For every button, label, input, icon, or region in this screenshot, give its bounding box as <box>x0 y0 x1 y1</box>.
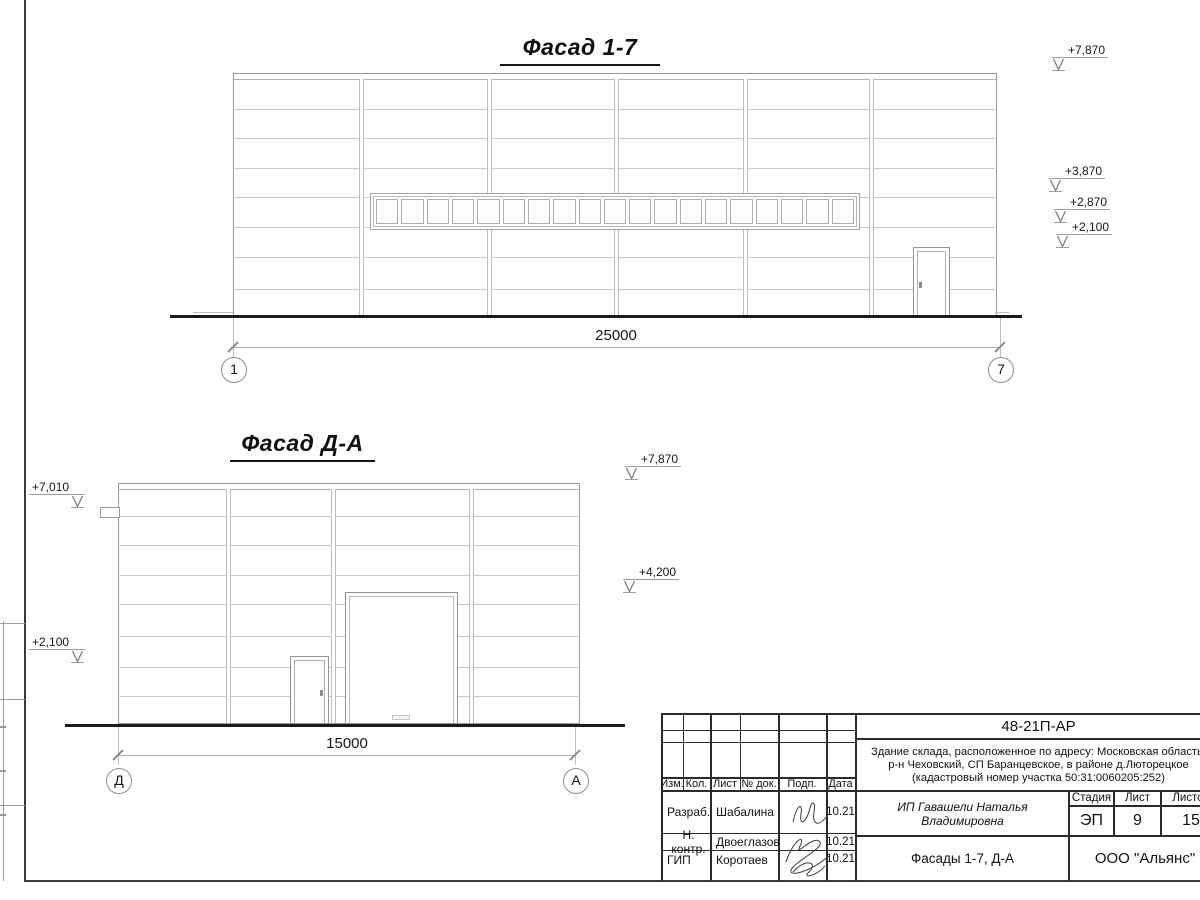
facade-1-7-title: Фасад 1-7 <box>500 34 660 66</box>
window-pane <box>604 199 626 224</box>
window-pane <box>376 199 398 224</box>
window-pane <box>730 199 752 224</box>
canopy <box>100 507 120 518</box>
margin-divider <box>0 623 25 624</box>
axis-bubble-d: Д <box>106 768 132 794</box>
base-ledge <box>193 312 233 313</box>
dimension-line <box>118 755 575 756</box>
level-arrow-icon <box>1049 179 1062 192</box>
stamp-col-list: Лист <box>710 777 740 791</box>
drawing-sheet: Фасад 1-7 25000 1 7 +7 <box>0 0 1200 900</box>
window-strip-inner <box>373 196 857 227</box>
frame-bottom <box>24 880 1200 882</box>
signature <box>779 828 833 880</box>
window-pane <box>477 199 499 224</box>
stamp-company: ООО "Альянс" <box>1070 837 1200 880</box>
stamp-project-code: 48-21П-АР <box>857 715 1200 738</box>
window-pane <box>401 199 423 224</box>
window-pane <box>553 199 575 224</box>
mullion <box>469 489 474 723</box>
stamp-name: Коротаев <box>712 850 778 880</box>
stamp-stage-label: Стадия <box>1070 791 1113 805</box>
dimension-value: 15000 <box>302 735 392 752</box>
stamp-sheets-label: Листов <box>1162 791 1200 805</box>
extension-line <box>1000 318 1001 357</box>
facade-d-a-title: Фасад Д-А <box>230 430 375 462</box>
level-arrow-icon <box>71 650 84 663</box>
stamp-role: Н. контр. <box>663 833 710 850</box>
door-facade-1-7 <box>913 247 950 317</box>
door-handle <box>320 690 323 696</box>
elevation-mark: +2,870 <box>1054 196 1110 223</box>
stamp-col-izm: Изм. <box>661 777 683 791</box>
window-pane <box>680 199 702 224</box>
ribbon-window <box>370 193 860 230</box>
elevation-mark: +3,870 <box>1049 165 1105 192</box>
margin-text-mark <box>0 770 6 772</box>
elevation-mark: +4,200 <box>623 566 679 593</box>
stamp-name: Двоеглазов <box>712 833 778 850</box>
level-arrow-icon <box>71 495 84 508</box>
window-pane <box>705 199 727 224</box>
level-arrow-icon <box>625 467 638 480</box>
window-pane <box>579 199 601 224</box>
mullion <box>331 489 336 723</box>
parapet-line <box>119 489 579 490</box>
mullion <box>359 79 364 316</box>
stamp-col-doc: № док. <box>740 777 778 791</box>
frame-left-thick <box>24 0 26 882</box>
elevation-mark: +2,100 <box>1056 221 1112 248</box>
facade-d-a-building <box>118 483 580 724</box>
axis-bubble-7: 7 <box>988 357 1014 383</box>
window-pane <box>806 199 828 224</box>
stamp-col-podp: Подп. <box>778 777 826 791</box>
extension-line <box>233 318 234 357</box>
level-arrow-icon <box>623 580 636 593</box>
facade-1-7-building <box>233 73 997 317</box>
level-arrow-icon <box>1052 58 1065 71</box>
axis-bubble-1: 1 <box>221 357 247 383</box>
stamp-object-description: Здание склада, расположенное по адресу: … <box>857 740 1200 790</box>
panel-line <box>120 575 578 576</box>
door-handle <box>919 282 922 288</box>
window-pane <box>654 199 676 224</box>
elevation-mark: +7,870 <box>625 453 681 480</box>
dimension-line <box>233 347 1000 348</box>
stamp-name: Шабалина <box>712 791 778 833</box>
frame-margin-line <box>3 621 4 881</box>
level-arrow-icon <box>1056 235 1069 248</box>
door-facade-d-a <box>290 656 329 724</box>
extension-line <box>118 727 119 765</box>
stamp-sheet-label: Лист <box>1115 791 1160 805</box>
ground-line-facade-1-7 <box>170 315 1022 318</box>
stamp-col-kol: Кол. <box>683 777 710 791</box>
window-pane <box>452 199 474 224</box>
extension-line <box>575 727 576 765</box>
margin-text-mark <box>0 814 6 816</box>
stamp-date: 10.21 <box>826 791 855 833</box>
window-pane <box>503 199 525 224</box>
window-pane <box>756 199 778 224</box>
window-pane <box>427 199 449 224</box>
panel-line <box>120 516 578 517</box>
stamp-stage-value: ЭП <box>1070 807 1113 835</box>
mullion <box>869 79 874 316</box>
window-pane <box>781 199 803 224</box>
gate <box>345 592 458 724</box>
window-pane <box>832 199 854 224</box>
gate-leaf <box>349 596 454 723</box>
margin-text-mark <box>0 726 6 728</box>
mullion <box>226 489 231 723</box>
window-pane <box>528 199 550 224</box>
stamp-col-data: Дата <box>826 777 855 791</box>
elevation-mark: +7,010 <box>29 481 85 508</box>
elevation-mark: +7,870 <box>1052 44 1108 71</box>
stamp-sheet-value: 9 <box>1115 807 1160 835</box>
margin-divider <box>0 699 25 700</box>
window-pane <box>629 199 651 224</box>
panel-line <box>120 545 578 546</box>
dimension-value: 25000 <box>571 327 661 344</box>
margin-divider <box>0 805 25 806</box>
ground-line-facade-d-a <box>65 724 625 727</box>
gate-plate <box>392 715 410 720</box>
elevation-mark: +2,100 <box>29 636 85 663</box>
stamp-sheets-value: 15 <box>1162 807 1200 835</box>
stamp-role: ГИП <box>663 850 710 880</box>
base-ledge <box>995 312 1009 313</box>
stamp-customer: ИП Гавашели Наталья Владимировна <box>857 792 1068 835</box>
stamp-sheet-title: Фасады 1-7, Д-А <box>857 837 1068 880</box>
axis-bubble-a: А <box>563 768 589 794</box>
